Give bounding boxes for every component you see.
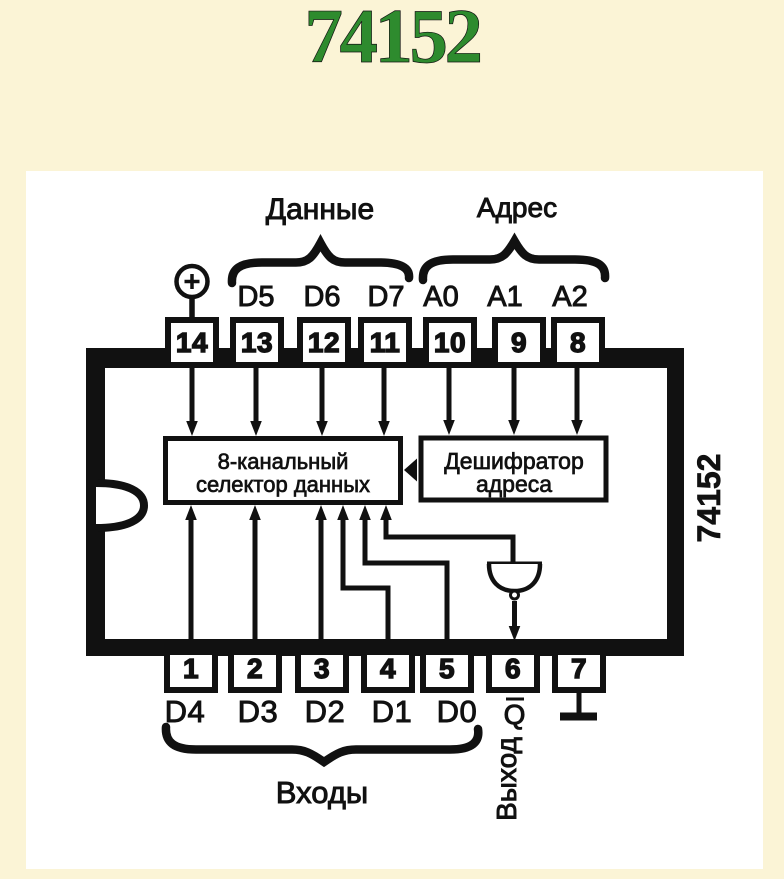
svg-text:A0: A0 <box>423 281 458 313</box>
svg-text:7: 7 <box>571 653 587 684</box>
svg-text:4: 4 <box>380 653 396 684</box>
svg-text:D5: D5 <box>237 281 274 313</box>
svg-text:D2: D2 <box>305 694 346 729</box>
svg-text:Q: Q <box>504 699 526 730</box>
svg-text:10: 10 <box>434 327 466 358</box>
svg-text:14: 14 <box>176 327 208 358</box>
svg-text:5: 5 <box>439 653 455 684</box>
svg-text:3: 3 <box>314 653 330 684</box>
svg-text:12: 12 <box>308 327 340 358</box>
svg-text:Выход: Выход <box>491 737 522 821</box>
svg-text:8-канальный: 8-канальный <box>218 449 349 474</box>
svg-text:Адрес: Адрес <box>477 192 557 223</box>
svg-text:селектор данных: селектор данных <box>196 472 370 497</box>
svg-text:D0: D0 <box>437 694 478 729</box>
svg-text:6: 6 <box>505 653 521 684</box>
svg-text:D3: D3 <box>238 694 279 729</box>
svg-text:D7: D7 <box>367 281 404 313</box>
svg-text:74152: 74152 <box>305 0 481 79</box>
svg-text:A2: A2 <box>552 281 587 313</box>
svg-text:A1: A1 <box>487 281 522 313</box>
svg-text:74152: 74152 <box>691 454 727 543</box>
svg-text:адреса: адреса <box>476 471 552 497</box>
svg-text:Данные: Данные <box>266 193 374 226</box>
svg-text:D1: D1 <box>372 694 413 729</box>
svg-text:D4: D4 <box>165 694 206 729</box>
svg-text:11: 11 <box>370 327 401 358</box>
svg-text:1: 1 <box>183 653 199 684</box>
svg-text:Входы: Входы <box>276 775 368 810</box>
svg-text:8: 8 <box>570 327 586 358</box>
svg-text:9: 9 <box>511 327 527 358</box>
svg-text:2: 2 <box>247 653 263 684</box>
svg-text:13: 13 <box>241 327 273 358</box>
svg-text:D6: D6 <box>303 281 340 313</box>
